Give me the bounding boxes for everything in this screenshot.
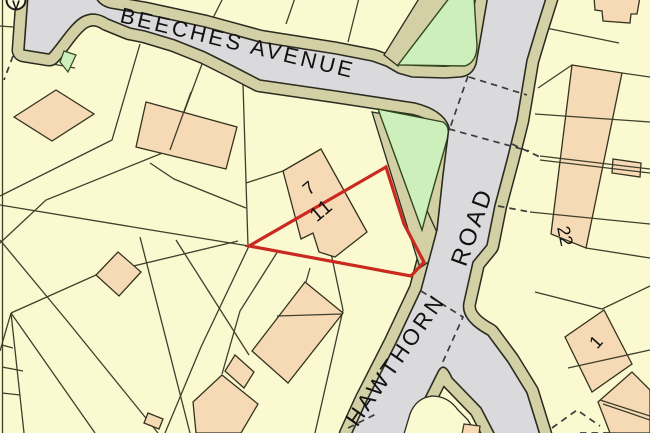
svg-text:V: V <box>12 0 20 12</box>
svg-text:22: 22 <box>553 224 577 248</box>
